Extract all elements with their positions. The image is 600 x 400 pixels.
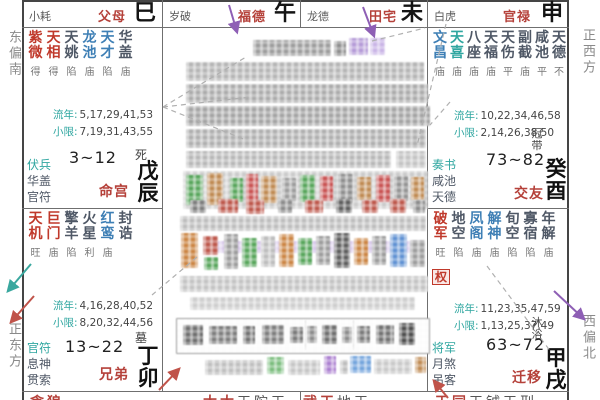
liunian-line: 流年:4,16,28,40,52 [53,298,153,313]
deity-label: 将军 [432,340,456,356]
deity-label: 奏书 [432,157,456,173]
palace-name: 官禄 [503,6,531,25]
deity-label: 伏兵 [27,157,51,173]
branch-char: 申 [541,0,563,27]
star-column: 寡宿陷 [522,212,539,259]
deity-stack: 官符息神贯索 [27,340,51,388]
ganzhi: 癸酉 [545,158,567,202]
palace-name: 田宅 [369,6,397,25]
deity-label: 月煞 [432,356,456,372]
liunian-line: 流年:10,22,34,46,58 [454,108,561,123]
age-range: 13~22 [65,337,124,356]
star-column: 解神庙 [486,212,503,259]
branch-char: 午 [274,0,296,27]
palace-name: 交友 [514,183,544,203]
direction-label-west-north: 西偏北 [578,314,597,362]
palace-name: 迁移 [512,367,542,387]
deity-label: 官符 [27,189,51,205]
star-fragment: 武天 [303,395,337,400]
star-fragment: 天陀天 [237,395,288,400]
deity-label: 龙德 [307,8,329,24]
deity-label: 岁破 [169,8,191,24]
liunian-line: 流年:5,17,29,41,53 [53,107,153,122]
star-list: 破军旺地空陷凤阁庙解神庙旬空陷寡宿陷年解庙 [432,212,557,259]
star-list: 紫微得天相得天姚陷龙池庙天才陷华盖庙 [27,31,134,78]
star-column: 咸池平 [534,31,550,78]
hua-quan-badge: 权 [432,269,450,285]
direction-label-west: 正西方 [578,28,597,76]
deity-label: 白虎 [434,8,456,24]
deity-stack: 将军月煞吊客 [432,340,456,388]
deity-label: 官符 [27,340,51,356]
palace-strip-guanlu[interactable]: 白虎 官禄 申 [428,0,569,27]
star-column: 巨门庙 [45,212,62,259]
star-fragment: 太太 [203,395,237,400]
palace-name: 父母 [98,6,126,25]
direction-label-east-south: 东偏南 [4,30,23,78]
palace-jiaoyou[interactable]: 文昌庙天喜庙八座庙天福庙天伤平副截庙咸池平天德不 流年:10,22,34,46,… [428,28,569,208]
palace-strip-bottom-3[interactable]: 武天地天 [303,392,371,400]
palace-strip-bottom-4[interactable]: 天同天钺天刑 [435,392,537,400]
star-column: 天相得 [45,31,62,78]
grid-line [300,391,301,400]
palace-strip-bottom-2[interactable]: 太太天陀天 [203,392,288,400]
star-fragment: 天钺天刑 [469,395,537,400]
deity-label: 天德 [432,189,456,205]
xiaoxian-line: 小限:8,20,32,44,56 [53,315,153,330]
star-column: 天才陷 [99,31,116,78]
palace-strip-fumu[interactable]: 小耗 父母 巳 [23,0,162,27]
deity-label: 华盖 [27,173,51,189]
star-fragment: 天同 [435,395,469,400]
deity-label: 贯索 [27,372,51,388]
deity-label: 小耗 [29,8,51,24]
ganzhi: 甲戌 [545,347,567,391]
redacted-info-panel [163,28,427,391]
liunian-line: 流年:11,23,35,47,59 [454,301,561,316]
direction-label-east: 正东方 [4,322,23,370]
deity-stack: 奏书咸池天德 [432,157,456,205]
star-column: 旬空陷 [504,212,521,259]
star-column: 文昌庙 [432,31,448,78]
palace-qianyi[interactable]: 破军旺地空陷凤阁庙解神庙旬空陷寡宿陷年解庙 权 流年:11,23,35,47,5… [428,209,569,391]
palace-xiongdi[interactable]: 天机旺巨门庙擎羊陷火星利红鸾庙封诰 流年:4,16,28,40,52 小限:8,… [23,209,161,391]
star-fragment: 地天 [337,395,371,400]
star-column: 红鸾庙 [99,212,116,259]
star-column: 年解庙 [540,212,557,259]
deity-label: 吊客 [432,372,456,388]
branch-char: 未 [401,0,423,27]
life-stage: 冠带 [531,128,543,152]
star-list: 文昌庙天喜庙八座庙天福庙天伤平副截庙咸池平天德不 [432,31,567,78]
palace-strip-tianzhai[interactable]: 龙德 田宅 未 [301,0,427,27]
ziwei-doushu-chart: 东偏南 正东方 正西方 西偏北 小耗 父母 巳 岁破 福德 午 龙德 田宅 未 … [0,0,600,400]
age-range: 73~82 [486,150,545,169]
star-column: 凤阁庙 [468,212,485,259]
star-column: 八座庙 [466,31,482,78]
palace-name: 兄弟 [99,364,129,384]
palace-name: 福德 [238,6,266,25]
branch-char: 巳 [134,0,156,27]
star-column: 封诰 [117,212,134,259]
star-column: 破军旺 [432,212,449,259]
star-column: 华盖庙 [117,31,134,78]
star-list: 天机旺巨门庙擎羊陷火星利红鸾庙封诰 [27,212,134,259]
palace-minggong[interactable]: 紫微得天相得天姚陷龙池庙天才陷华盖庙 流年:5,17,29,41,53 小限:7… [23,28,161,208]
deity-stack: 伏兵华盖官符 [27,157,51,205]
life-stage: 沐浴 [531,317,543,341]
ganzhi: 丁卯 [137,345,159,389]
star-column: 天福庙 [483,31,499,78]
star-column: 天机旺 [27,212,44,259]
star-column: 天伤平 [500,31,516,78]
star-column: 紫微得 [27,31,44,78]
star-column: 天喜庙 [449,31,465,78]
star-column: 龙池庙 [81,31,98,78]
star-column: 火星利 [81,212,98,259]
star-column: 擎羊陷 [63,212,80,259]
deity-label: 咸池 [432,173,456,189]
star-column: 天德不 [551,31,567,78]
star-column: 副截庙 [517,31,533,78]
star-column: 地空陷 [450,212,467,259]
age-range: 3~12 [69,148,117,167]
palace-strip-fude[interactable]: 岁破 福德 午 [163,0,300,27]
star-column: 天姚陷 [63,31,80,78]
xiaoxian-line: 小限:7,19,31,43,55 [53,124,153,139]
deity-label: 息神 [27,356,51,372]
star-fragment: 贪狼 [30,395,64,400]
palace-strip-bottom-1[interactable]: 贪狼 [30,392,64,400]
palace-name: 命宫 [99,181,129,201]
ganzhi: 戊辰 [137,160,159,204]
